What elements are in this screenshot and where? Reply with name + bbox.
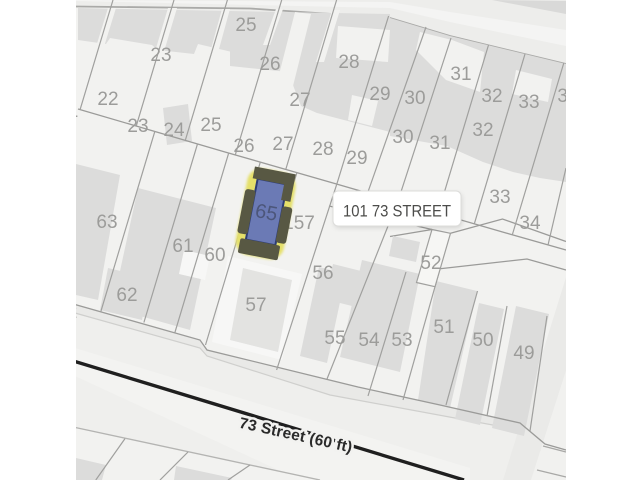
svg-text:62: 62	[116, 285, 137, 306]
svg-text:34: 34	[519, 213, 541, 234]
svg-text:23: 23	[150, 45, 171, 66]
svg-text:27: 27	[289, 90, 310, 111]
svg-text:33: 33	[489, 187, 510, 208]
svg-text:51: 51	[433, 317, 454, 338]
svg-text:54: 54	[358, 330, 380, 351]
svg-text:56: 56	[312, 263, 333, 284]
svg-text:28: 28	[338, 52, 359, 73]
svg-text:27: 27	[272, 134, 293, 155]
svg-text:50: 50	[472, 330, 493, 351]
svg-text:49: 49	[513, 343, 534, 364]
svg-text:101 73 STREET: 101 73 STREET	[343, 202, 451, 221]
svg-text:24: 24	[163, 120, 185, 141]
svg-text:57: 57	[245, 295, 266, 316]
svg-text:25: 25	[200, 115, 221, 136]
svg-text:52: 52	[420, 253, 441, 274]
svg-text:29: 29	[346, 148, 367, 169]
svg-text:32: 32	[472, 120, 493, 141]
svg-text:32: 32	[481, 86, 502, 107]
svg-text:28: 28	[312, 139, 333, 160]
svg-text:30: 30	[404, 88, 425, 109]
svg-text:31: 31	[450, 64, 471, 85]
svg-text:60: 60	[204, 245, 225, 266]
svg-text:61: 61	[172, 236, 193, 257]
svg-text:26: 26	[233, 136, 254, 157]
svg-text:55: 55	[324, 328, 345, 349]
svg-text:30: 30	[392, 127, 413, 148]
svg-text:29: 29	[369, 84, 390, 105]
svg-text:33: 33	[518, 92, 539, 113]
svg-text:65: 65	[253, 200, 279, 226]
svg-text:26: 26	[259, 54, 280, 75]
svg-text:25: 25	[235, 15, 256, 36]
svg-text:53: 53	[391, 330, 412, 351]
svg-text:23: 23	[127, 116, 148, 137]
svg-text:63: 63	[96, 212, 117, 233]
svg-text:31: 31	[429, 133, 450, 154]
svg-text:22: 22	[97, 89, 118, 110]
